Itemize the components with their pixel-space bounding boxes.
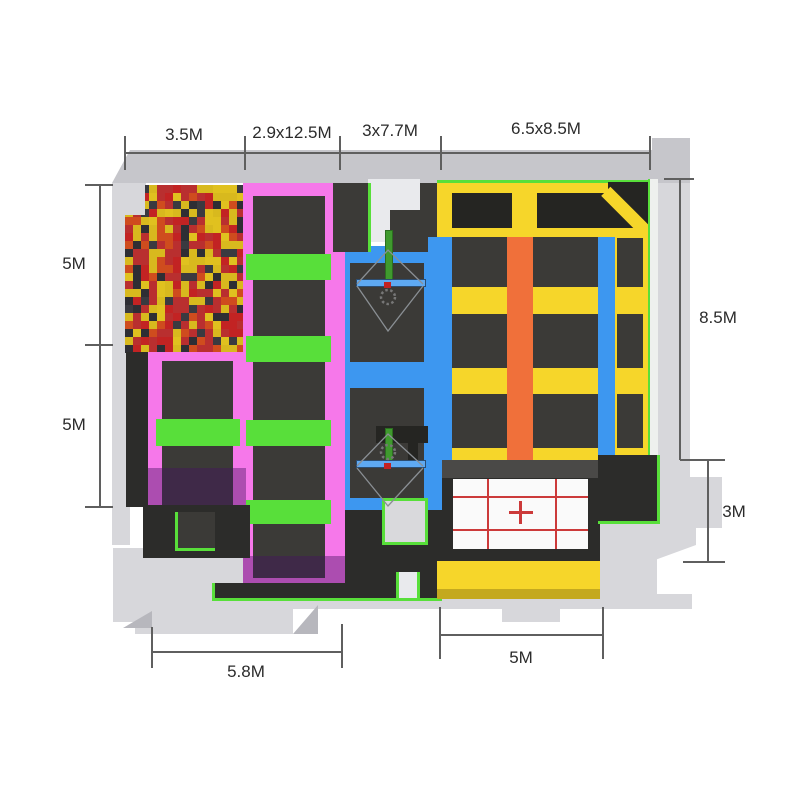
foam-cube	[189, 201, 197, 209]
foam-cube	[189, 313, 197, 321]
foam-cube	[205, 249, 213, 257]
dim-tick	[602, 607, 604, 659]
foam-cube	[149, 249, 157, 257]
foam-cube	[125, 281, 133, 289]
foam-cube	[149, 321, 157, 329]
foam-cube	[197, 225, 205, 233]
dark-platform-step	[390, 210, 420, 252]
trampoline-bed	[253, 362, 325, 420]
foam-pit-corner-notch	[112, 183, 145, 215]
foam-cube	[205, 305, 213, 313]
foam-cube	[205, 321, 213, 329]
foam-cube	[157, 305, 165, 313]
foam-cube	[157, 265, 165, 273]
foam-cube	[157, 313, 165, 321]
foam-cube	[141, 241, 149, 249]
foam-cube	[165, 241, 173, 249]
foam-cube	[205, 201, 213, 209]
trampoline-bed	[253, 280, 325, 336]
dodgeball-court-border-right	[598, 455, 660, 524]
foam-cube	[165, 321, 173, 329]
foam-cube	[149, 201, 157, 209]
foam-cube	[229, 193, 237, 201]
foam-cube	[181, 321, 189, 329]
foam-cube	[205, 233, 213, 241]
foam-cube	[125, 305, 133, 313]
foam-cube	[205, 273, 213, 281]
foam-cube	[165, 201, 173, 209]
foam-cube	[165, 193, 173, 201]
dim-label-right-2: 3M	[714, 502, 754, 522]
foam-cube	[221, 185, 229, 193]
foam-cube	[149, 281, 157, 289]
dark-walkway-strip	[126, 352, 148, 507]
dim-line-top	[124, 152, 650, 154]
foam-cube	[197, 233, 205, 241]
foam-cube	[181, 249, 189, 257]
foam-cube	[149, 185, 157, 193]
foam-cube	[205, 217, 213, 225]
foam-cube	[165, 329, 173, 337]
foam-cube	[181, 185, 189, 193]
foam-cube	[125, 313, 133, 321]
foam-cube	[173, 201, 181, 209]
foam-cube	[205, 209, 213, 217]
foam-cube	[141, 305, 149, 313]
foam-cube	[157, 209, 165, 217]
foam-cube	[157, 217, 165, 225]
dim-tick	[649, 136, 651, 170]
foam-cube	[173, 249, 181, 257]
foam-cube	[157, 289, 165, 297]
foam-cube	[173, 233, 181, 241]
floor-step-wedge-center	[293, 605, 318, 634]
dark-floor-strip-bottom	[212, 583, 348, 601]
foam-cube	[221, 329, 229, 337]
foam-cube	[189, 281, 197, 289]
foam-cube	[213, 297, 221, 305]
foam-cube	[125, 321, 133, 329]
foam-cube	[149, 337, 157, 345]
foam-cube	[173, 337, 181, 345]
basketball-rim-mount	[384, 282, 391, 288]
foam-cube	[173, 273, 181, 281]
foam-cube	[149, 289, 157, 297]
foam-cube	[149, 305, 157, 313]
foam-cube	[149, 313, 157, 321]
foam-cube	[157, 201, 165, 209]
foam-cube	[157, 321, 165, 329]
foam-cube	[205, 241, 213, 249]
foam-cube	[213, 201, 221, 209]
foam-cube	[197, 185, 205, 193]
foam-cube	[173, 321, 181, 329]
foam-cube	[181, 241, 189, 249]
foam-cube	[141, 233, 149, 241]
foam-cube	[141, 225, 149, 233]
foam-cube	[197, 217, 205, 225]
green-padding-strip	[246, 254, 331, 280]
foam-cube	[173, 185, 181, 193]
foam-cube	[125, 217, 133, 225]
foam-cube	[213, 289, 221, 297]
basketball-backboard	[356, 279, 426, 287]
foam-cube	[197, 273, 205, 281]
foam-cube	[173, 225, 181, 233]
foam-cube	[125, 225, 133, 233]
floor-slab-center-step	[502, 608, 560, 622]
foam-cube	[221, 233, 229, 241]
foam-cube	[213, 249, 221, 257]
foam-cube	[133, 329, 141, 337]
foam-cube	[157, 281, 165, 289]
foam-cube	[205, 337, 213, 345]
foam-cube	[213, 313, 221, 321]
foam-cube	[173, 257, 181, 265]
dim-tick	[124, 136, 126, 170]
foam-cube	[141, 297, 149, 305]
foam-cube	[221, 249, 229, 257]
foam-cube	[221, 313, 229, 321]
foam-cube	[165, 281, 173, 289]
foam-cube	[181, 201, 189, 209]
foam-cube	[229, 305, 237, 313]
foam-cube	[213, 185, 221, 193]
foam-cube	[181, 297, 189, 305]
court-center-cross	[519, 501, 522, 524]
dim-line-right-1	[679, 179, 681, 460]
foam-cube	[229, 289, 237, 297]
foam-cube	[141, 289, 149, 297]
foam-cube	[197, 241, 205, 249]
dim-label-top-2: 2.9x12.5M	[246, 123, 338, 143]
dark-platform-left	[333, 183, 371, 252]
foam-cube	[157, 225, 165, 233]
foam-cube	[197, 329, 205, 337]
dim-tick	[664, 178, 694, 180]
foam-cube	[213, 281, 221, 289]
green-padding-strip	[246, 420, 331, 446]
foam-cube	[221, 209, 229, 217]
dim-label-left-2: 5M	[56, 415, 92, 435]
foam-cube	[157, 185, 165, 193]
dim-tick	[440, 136, 442, 170]
foam-cube	[181, 281, 189, 289]
foam-cube	[213, 233, 221, 241]
foam-cube	[205, 193, 213, 201]
court-blue-stripe	[598, 237, 615, 462]
foam-cube	[133, 241, 141, 249]
trampoline-park-floor-plan: 3.5M 2.9x12.5M 3x7.7M 6.5x8.5M 5M 5M 8.5…	[0, 0, 800, 800]
foam-cube	[229, 273, 237, 281]
foam-cube	[189, 193, 197, 201]
foam-cube	[197, 321, 205, 329]
trampoline-bed	[253, 446, 325, 500]
foam-cube	[165, 265, 173, 273]
foam-cube	[189, 289, 197, 297]
zone-shadow	[243, 556, 345, 583]
foam-cube	[125, 233, 133, 241]
foam-cube	[165, 209, 173, 217]
foam-cube	[173, 329, 181, 337]
foam-cube	[205, 281, 213, 289]
foam-cube	[221, 241, 229, 249]
foam-cube	[213, 305, 221, 313]
basketball-backboard	[356, 460, 426, 468]
foam-cube	[189, 233, 197, 241]
foam-cube	[133, 257, 141, 265]
basketball-pole	[385, 230, 393, 285]
foam-cube	[125, 265, 133, 273]
foam-cube	[189, 249, 197, 257]
dim-tick	[85, 184, 113, 186]
trampoline-bed	[253, 196, 325, 254]
foam-cube	[189, 265, 197, 273]
foam-cube	[141, 321, 149, 329]
green-padding-strip	[246, 500, 331, 524]
foam-cube	[181, 209, 189, 217]
dim-tick	[341, 624, 343, 668]
foam-cube	[125, 297, 133, 305]
foam-cube	[197, 209, 205, 217]
foam-cube	[133, 217, 141, 225]
foam-cube	[165, 337, 173, 345]
foam-cube	[205, 257, 213, 265]
foam-cube	[221, 225, 229, 233]
dim-line-bottom-2	[439, 634, 603, 636]
foam-cube	[181, 265, 189, 273]
foam-cube	[149, 265, 157, 273]
dodgeball-court-border-top-face	[442, 460, 600, 478]
foam-cube	[133, 225, 141, 233]
zone-shadow	[148, 468, 246, 507]
frame-window	[452, 193, 512, 228]
foam-cube	[165, 225, 173, 233]
foam-cube	[133, 313, 141, 321]
foam-cube	[133, 305, 141, 313]
foam-cube	[213, 321, 221, 329]
dim-tick	[683, 561, 725, 563]
foam-cube	[229, 201, 237, 209]
foam-cube	[173, 305, 181, 313]
foam-cube	[229, 209, 237, 217]
foam-cube	[189, 257, 197, 265]
foam-cube	[221, 257, 229, 265]
foam-cube	[149, 225, 157, 233]
dim-tick	[339, 136, 341, 170]
foam-cube	[213, 241, 221, 249]
foam-cube	[181, 289, 189, 297]
foam-cube	[133, 233, 141, 241]
foam-cube	[229, 281, 237, 289]
foam-cube	[205, 329, 213, 337]
foam-cube	[221, 201, 229, 209]
foam-cube	[173, 217, 181, 225]
dim-label-top-4: 6.5x8.5M	[500, 119, 592, 139]
foam-cube	[197, 249, 205, 257]
foam-cube	[213, 209, 221, 217]
foam-cube	[189, 241, 197, 249]
floor-slab-right-steps	[655, 458, 722, 560]
foam-cube	[213, 337, 221, 345]
foam-cube	[181, 225, 189, 233]
foam-cube	[165, 257, 173, 265]
foam-cube	[141, 329, 149, 337]
foam-cube	[189, 305, 197, 313]
foam-cube	[221, 289, 229, 297]
foam-cube	[213, 193, 221, 201]
foam-cube	[197, 281, 205, 289]
foam-cube	[125, 241, 133, 249]
foam-cube	[197, 257, 205, 265]
foam-cube	[157, 337, 165, 345]
court-line-h	[453, 529, 588, 531]
foam-cube	[197, 201, 205, 209]
foam-cube	[149, 193, 157, 201]
foam-cube	[229, 337, 237, 345]
foam-cube	[141, 281, 149, 289]
dim-label-left-1: 5M	[56, 254, 92, 274]
foam-cube	[229, 225, 237, 233]
foam-cube	[149, 257, 157, 265]
foam-cube	[149, 273, 157, 281]
foam-cube	[165, 217, 173, 225]
foam-cube	[221, 193, 229, 201]
foam-cube	[157, 257, 165, 265]
foam-cube	[165, 249, 173, 257]
foam-cube	[213, 329, 221, 337]
foam-cube	[229, 297, 237, 305]
foam-cube	[133, 281, 141, 289]
foam-cube	[221, 265, 229, 273]
foam-cube	[205, 265, 213, 273]
dim-line-left	[99, 184, 101, 507]
foam-cube	[205, 289, 213, 297]
foam-cube	[205, 313, 213, 321]
foam-cube	[229, 321, 237, 329]
foam-cube	[157, 241, 165, 249]
foam-cube	[181, 217, 189, 225]
foam-cube	[221, 305, 229, 313]
foam-cube	[141, 313, 149, 321]
foam-cube	[189, 297, 197, 305]
foam-cube	[173, 209, 181, 217]
foam-cube	[229, 241, 237, 249]
foam-cube	[221, 273, 229, 281]
foam-cube	[181, 329, 189, 337]
foam-cube	[181, 273, 189, 281]
dim-label-bottom-1: 5.8M	[206, 662, 286, 682]
foam-cube	[189, 217, 197, 225]
foam-cube	[157, 249, 165, 257]
dim-label-right-1: 8.5M	[690, 308, 746, 328]
dim-tick	[85, 506, 113, 508]
foam-cube	[141, 337, 149, 345]
landing-pad	[382, 498, 428, 545]
foam-cube	[189, 225, 197, 233]
foam-cube	[149, 241, 157, 249]
foam-cube	[157, 193, 165, 201]
foam-cube	[205, 297, 213, 305]
foam-cube	[229, 249, 237, 257]
foam-cube	[133, 337, 141, 345]
floor-notch	[396, 572, 420, 598]
foam-cube	[125, 257, 133, 265]
foam-cube	[133, 321, 141, 329]
foam-cube	[229, 265, 237, 273]
foam-cube	[165, 313, 173, 321]
foam-cube	[157, 297, 165, 305]
foam-cube	[149, 329, 157, 337]
foam-cube	[221, 337, 229, 345]
foam-cube	[125, 337, 133, 345]
foam-cube	[165, 289, 173, 297]
dim-tick	[85, 344, 113, 346]
green-padding-strip	[246, 336, 331, 362]
foam-cube	[133, 273, 141, 281]
frame-window	[537, 193, 608, 228]
foam-cube	[197, 313, 205, 321]
foam-cube	[213, 257, 221, 265]
foam-cube	[181, 337, 189, 345]
foam-cube	[141, 257, 149, 265]
small-platform	[175, 512, 215, 551]
dim-label-top-3: 3x7.7M	[349, 121, 431, 141]
foam-cube	[213, 273, 221, 281]
foam-cube	[197, 289, 205, 297]
foam-cube	[173, 297, 181, 305]
dim-tick	[680, 459, 725, 461]
court-yellow-stripe-h	[448, 287, 648, 314]
foam-cube	[173, 281, 181, 289]
foam-cube	[197, 297, 205, 305]
foam-cube	[213, 217, 221, 225]
right-border-cell	[617, 393, 643, 450]
foam-cube	[173, 289, 181, 297]
foam-cube	[205, 185, 213, 193]
foam-cube	[189, 209, 197, 217]
green-padding-strip	[156, 419, 240, 446]
foam-cube	[221, 217, 229, 225]
foam-cube	[173, 313, 181, 321]
foam-cube	[173, 265, 181, 273]
foam-cube	[141, 249, 149, 257]
right-border-cell	[617, 313, 643, 368]
foam-cube	[133, 297, 141, 305]
foam-cube	[229, 313, 237, 321]
foam-cube	[205, 225, 213, 233]
dim-tick	[151, 627, 153, 668]
foam-cube	[141, 217, 149, 225]
right-border-cell	[617, 238, 643, 287]
foam-cube	[173, 193, 181, 201]
foam-cube	[165, 273, 173, 281]
foam-cube	[197, 265, 205, 273]
dim-tick	[439, 607, 441, 659]
foam-cube	[229, 329, 237, 337]
dim-line-bottom-1	[151, 651, 342, 653]
foam-cube	[157, 273, 165, 281]
foam-cube	[197, 337, 205, 345]
court-orange-stripe	[507, 237, 533, 466]
foam-cube	[133, 249, 141, 257]
foam-cube	[229, 257, 237, 265]
foam-cube	[189, 273, 197, 281]
foam-cube	[189, 329, 197, 337]
foam-cube	[229, 185, 237, 193]
foam-cube	[141, 273, 149, 281]
dim-label-top-1: 3.5M	[144, 125, 224, 145]
